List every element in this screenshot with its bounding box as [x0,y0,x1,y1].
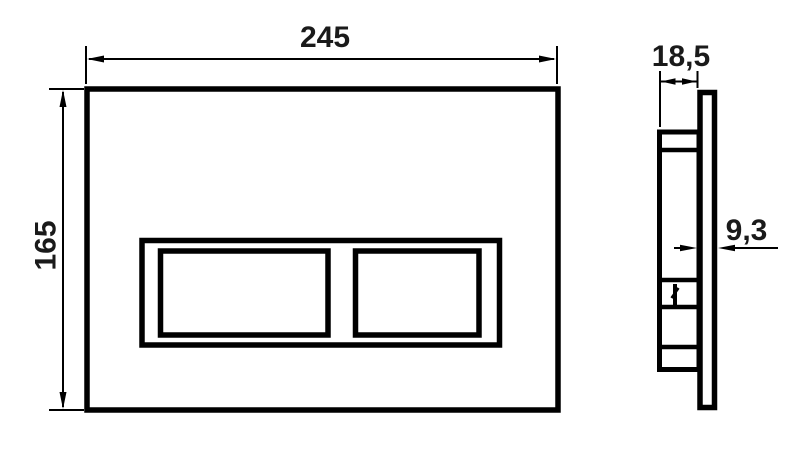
height-arrowhead-top [60,90,67,107]
depth-arrowhead-left [661,78,676,85]
depth-label: 18,5 [652,40,710,73]
front-view [87,89,558,410]
mounting-frame-profile [660,132,700,370]
dim-height: 165 [30,89,85,410]
drawing-canvas: 245 165 18,5 [0,0,800,452]
thickness-label: 9,3 [726,214,768,247]
plate-profile [700,93,715,408]
height-label: 165 [30,220,63,270]
width-label: 245 [300,21,350,54]
width-arrowhead-left [87,56,104,63]
technical-drawing: 245 165 18,5 [0,0,800,452]
dim-width: 245 [86,21,557,84]
flush-button-large [161,251,329,335]
flush-button-small [356,251,480,335]
depth-arrowhead-right [682,78,697,85]
height-arrowhead-bottom [60,392,67,409]
width-arrowhead-right [539,56,556,63]
